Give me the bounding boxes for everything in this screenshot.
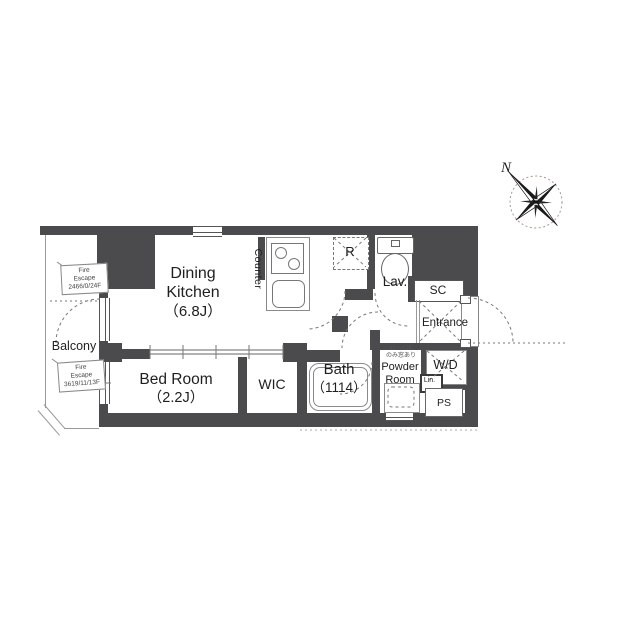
washbasin xyxy=(384,383,420,413)
door-jamb xyxy=(460,339,471,348)
label-entrance: Entrance xyxy=(417,317,473,331)
label-washer-dryer: W/D xyxy=(426,358,465,373)
label-balcony: Balcony xyxy=(46,339,102,354)
label-shoe-closet: SC xyxy=(414,283,462,297)
label-dining-kitchen: Dining Kitchen （6.8J） xyxy=(133,264,253,321)
label-bed-room: Bed Room （2.2J） xyxy=(116,370,236,408)
label-bath: Bath （1114） xyxy=(307,361,371,397)
stove-burner xyxy=(275,247,287,259)
wall-segment xyxy=(345,289,373,300)
wall-segment xyxy=(122,349,150,359)
floor-plan: N Fire Escape 2466/0/24F Fire Escape 361… xyxy=(0,0,639,640)
compass-north-label: N xyxy=(500,160,512,176)
wall-segment xyxy=(412,233,478,282)
balcony-outer-bottom xyxy=(64,428,99,429)
wall-segment xyxy=(332,316,348,332)
label-lavatory: Lav. xyxy=(374,274,416,290)
label-pipe-space: PS xyxy=(429,397,459,410)
wall-segment xyxy=(238,357,247,413)
balcony-outer-left xyxy=(45,233,46,408)
window-balcony-1 xyxy=(99,298,110,341)
balcony-corner-diagonal xyxy=(44,404,66,429)
balcony-corner-diagonal-2 xyxy=(38,410,60,436)
window-top xyxy=(193,226,222,237)
kitchen-sink xyxy=(272,280,305,308)
wall-segment xyxy=(297,350,307,413)
label-refrigerator: R xyxy=(340,244,360,260)
wall-segment xyxy=(108,343,122,362)
door-swing-overlay xyxy=(0,0,639,640)
label-counter: Counter xyxy=(250,229,264,309)
label-powder-note: 11〜13F のみ窓あり xyxy=(380,346,422,360)
compass-rose: N xyxy=(479,142,599,262)
window-powder-room xyxy=(386,412,413,421)
fire-escape-label-1: Fire Escape 2466/0/24F xyxy=(60,263,109,295)
stove-burner xyxy=(288,258,300,270)
wall-segment xyxy=(99,413,478,427)
label-linen: Lin. xyxy=(420,377,439,385)
label-powder-room: Powder Room xyxy=(376,361,424,386)
label-wic: WIC xyxy=(247,376,297,393)
toilet-button xyxy=(391,240,400,247)
fire-escape-label-2: Fire Escape 3619/11/13F xyxy=(57,359,106,392)
